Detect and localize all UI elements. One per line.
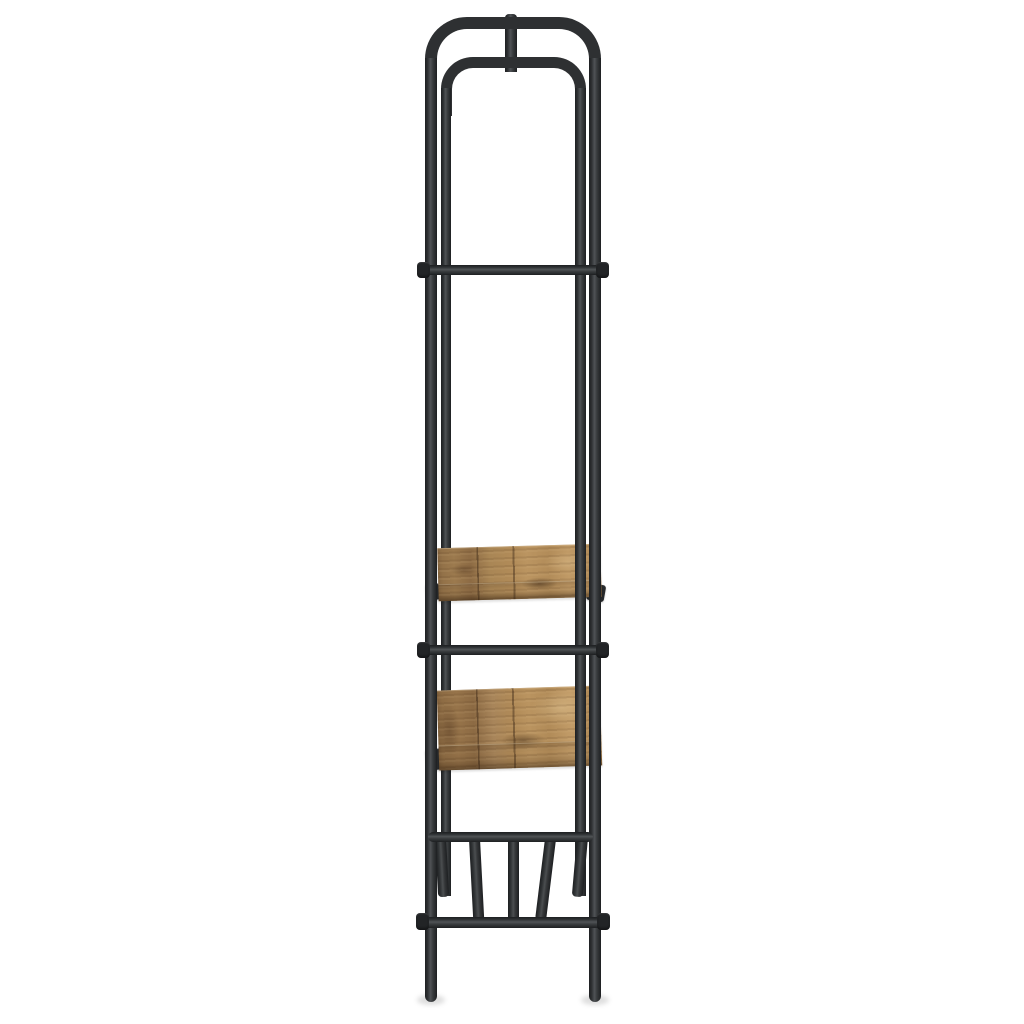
collar-fitting	[597, 913, 610, 930]
outer-frame-arch	[425, 17, 601, 87]
garment-rail-tube-right	[575, 88, 586, 896]
outer-frame-leg-right	[589, 58, 601, 1002]
collar-fitting	[596, 262, 609, 278]
collar-fitting	[417, 642, 430, 658]
bottom-shelf-slat-4	[535, 838, 556, 921]
bottom-shelf-front-rail	[419, 917, 607, 928]
collar-fitting	[596, 642, 609, 658]
garment-rail-tube-left	[441, 88, 451, 896]
product-image-canvas	[0, 0, 1024, 1024]
bottom-shelf-back-rail	[428, 832, 593, 842]
collar-fitting	[417, 262, 430, 278]
rail-tube-over-lower-shelf	[575, 682, 586, 774]
collar-fitting	[416, 913, 429, 930]
clothes-rack-side-view	[0, 0, 1024, 1024]
rail-tube-over-upper-shelf	[575, 540, 586, 604]
bottom-shelf-slat-3	[508, 839, 519, 921]
middle-crossbar	[419, 645, 607, 655]
bottom-shelf-slat-2	[469, 839, 484, 921]
outer-frame-leg-left	[425, 58, 437, 1002]
upper-crossbar	[419, 265, 607, 275]
